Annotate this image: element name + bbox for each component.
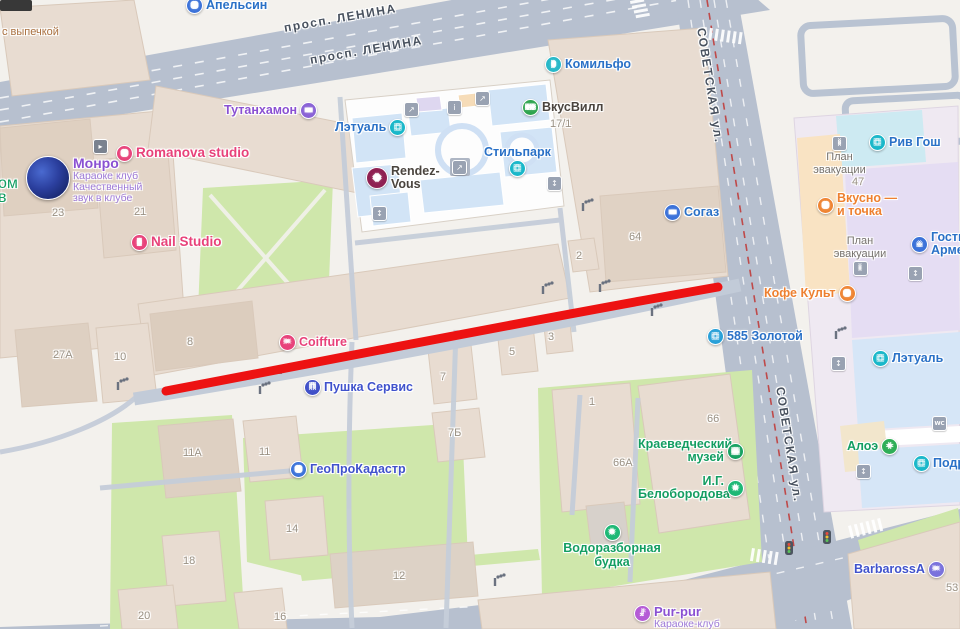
house-number: 8: [187, 337, 193, 349]
poi-vkusno-i-tochka[interactable]: ● Вкусно — и точка: [817, 192, 897, 218]
house-number: 5: [509, 347, 515, 359]
poi-beloborodova[interactable]: И.Г. Белобородова ★: [638, 475, 744, 501]
geoprokadastr-icon: ●: [290, 461, 307, 478]
escalator-icon: ↗: [452, 160, 467, 175]
poi-letual-right[interactable]: ◻ Лэтуаль: [872, 350, 943, 367]
house-number: 66: [707, 414, 719, 426]
poi-vkusvill[interactable]: ВВ ВкусВилл: [522, 99, 603, 116]
poi-kofe-kult[interactable]: Кофе Культ ●: [764, 285, 856, 302]
poi-plan-evakuatsii-2: План эвакуации i: [830, 236, 890, 276]
poi-coiffure[interactable]: ✂ Coiffure: [279, 334, 347, 351]
letual-bag-icon: ◻: [389, 119, 406, 136]
poi-riv-gosh[interactable]: ◻ Рив Гош: [869, 134, 941, 151]
house-number: 66А: [613, 458, 633, 470]
pur-pur-music-icon: ♪: [634, 605, 651, 622]
vkusno-i-tochka-icon: ●: [817, 197, 834, 214]
house-number: 23: [52, 208, 64, 220]
585-zolotoy-bag-icon: ◻: [707, 328, 724, 345]
kofe-kult-icon: ●: [839, 285, 856, 302]
poi-kraevedcheskiy-muzey[interactable]: Краеведческий музей ▦: [638, 438, 744, 464]
pushka-servis-icon: П: [304, 379, 321, 396]
poi-585-zolotoy[interactable]: ◻ 585 Золотой: [707, 328, 803, 345]
poi-podruzhka[interactable]: ◻ Подр: [913, 455, 960, 472]
poi-komilfo[interactable]: ◗ Комильфо: [545, 56, 631, 73]
house-number: 12: [393, 571, 405, 583]
stilpark-bag-icon: ◻: [509, 160, 526, 177]
letual-bag-icon: ◻: [872, 350, 889, 367]
museum-icon: ▦: [727, 443, 744, 460]
house-number: 2: [576, 251, 582, 263]
elevator-icon: ↕: [908, 266, 923, 281]
vkusvill-icon: ВВ: [522, 99, 539, 116]
elevator-icon: ↕: [372, 206, 387, 221]
house-number: 20: [138, 611, 150, 623]
house-number: 3: [548, 332, 554, 344]
romanova-icon: ●: [116, 145, 133, 162]
poi-tutankhamon[interactable]: Тутанхамон ▬: [224, 102, 317, 119]
house-number: 11: [259, 447, 270, 459]
hotel-icon: ⌂: [911, 236, 928, 253]
poi-pushka-servis[interactable]: П Пушка Сервис: [304, 379, 413, 396]
traffic-light-icon: [823, 530, 831, 544]
poi-vodorazbornaya-budka[interactable]: ★ Водоразборная будка: [564, 524, 660, 569]
poi-geoprokadastr[interactable]: ● ГеоПроКадастр: [290, 461, 406, 478]
house-number: 14: [286, 524, 298, 536]
apelsin-icon: ●: [186, 0, 203, 14]
house-number: 47: [852, 177, 864, 189]
house-number: 21: [134, 207, 146, 219]
house-number: 10: [114, 352, 126, 364]
house-number: 27А: [53, 350, 73, 362]
map-canvas[interactable]: просп. ЛЕНИНА просп. ЛЕНИНА СОВЕТСКАЯ ул…: [0, 0, 960, 629]
house-number: 53: [946, 583, 958, 595]
entrance-icon: ▸: [93, 139, 108, 154]
house-number: 7: [440, 372, 446, 384]
coiffure-icon: ✂: [279, 334, 296, 351]
poi-plan-evakuatsii-1: i План эвакуации: [812, 136, 867, 176]
dark-roof-object: [0, 0, 32, 11]
star-pin-icon: ★: [604, 524, 621, 541]
house-number: 18: [183, 556, 195, 568]
poi-rendez-vous[interactable]: ◆ Rendez- Vous: [366, 165, 440, 191]
poi-apelsin[interactable]: ● Апельсин: [186, 0, 267, 14]
pharmacy-cross-icon: +: [881, 438, 898, 455]
traffic-light-icon: [785, 541, 793, 555]
komilfo-bird-icon: ◗: [545, 56, 562, 73]
house-number: 7Б: [448, 428, 461, 440]
nail-studio-icon: ▮: [131, 234, 148, 251]
barbershop-scissors-icon: ✂: [928, 561, 945, 578]
sogaz-briefcase-icon: ▬: [664, 204, 681, 221]
elevator-icon: ↕: [856, 464, 871, 479]
poi-stilpark[interactable]: Стильпарк ◻: [484, 146, 551, 177]
poi-fragment-v: в: [0, 190, 7, 207]
riv-gosh-bag-icon: ◻: [869, 134, 886, 151]
monro-photo: [26, 156, 70, 200]
poi-romanova-studio[interactable]: ● Romanova studio: [116, 145, 249, 162]
house-number: 64: [629, 232, 641, 244]
poi-bakery-note: с выпечкой: [2, 27, 59, 39]
poi-monro[interactable]: Монро Караоке клуб Качественный звук в к…: [26, 156, 142, 204]
tutankhamon-briefcase-icon: ▬: [300, 102, 317, 119]
poi-gostinitsa[interactable]: ⌂ Гости Арме: [911, 231, 960, 257]
escalator-icon: ↗: [404, 102, 419, 117]
info-icon: i: [832, 136, 847, 151]
escalator-icon: ↗: [475, 91, 490, 106]
poi-barbarossa[interactable]: BarbarossA ✂: [854, 561, 945, 578]
elevator-icon: ↕: [831, 356, 846, 371]
house-number: 17/1: [550, 119, 571, 131]
poi-pur-pur[interactable]: ♪ Pur-pur Караоке-клуб: [634, 605, 720, 629]
house-number: 11А: [183, 448, 202, 460]
info-icon: i: [853, 261, 868, 276]
poi-sogaz[interactable]: ▬ Согаз: [664, 204, 719, 221]
restroom-icon: WC: [932, 416, 947, 431]
star-pin-icon: ★: [727, 480, 744, 497]
poi-nail-studio[interactable]: ▮ Nail Studio: [131, 234, 222, 251]
house-number: 1: [589, 397, 595, 409]
house-number: 16: [274, 612, 286, 624]
poi-aloe[interactable]: Алоэ +: [847, 438, 898, 455]
rendez-vous-icon: ◆: [366, 167, 388, 189]
podruzhka-bag-icon: ◻: [913, 455, 930, 472]
poi-letual-top[interactable]: Лэтуаль ◻: [335, 119, 406, 136]
elevator-icon: ↕: [547, 176, 562, 191]
info-icon: i: [447, 100, 462, 115]
